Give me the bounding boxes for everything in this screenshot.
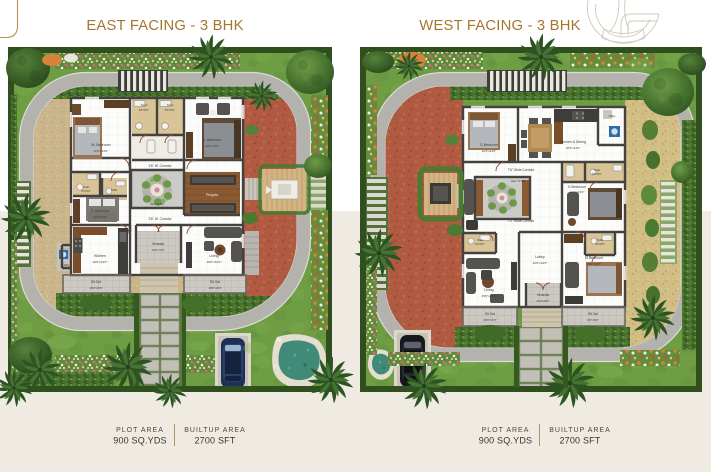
- svg-text:7'6" Wide Corridor: 7'6" Wide Corridor: [508, 168, 536, 172]
- svg-text:9'6"x6'0": 9'6"x6'0": [587, 318, 598, 322]
- svg-text:PLOT AREA: PLOT AREA: [482, 427, 530, 434]
- svg-text:900 SQ.YDS: 900 SQ.YDS: [479, 436, 533, 446]
- svg-text:900 SQ.YDS: 900 SQ.YDS: [113, 436, 167, 446]
- svg-text:8'0"x5'0": 8'0"x5'0": [592, 173, 602, 176]
- svg-text:EAST FACING - 3 BHK: EAST FACING - 3 BHK: [86, 18, 243, 34]
- svg-text:10'6"x13'0": 10'6"x13'0": [570, 190, 585, 194]
- svg-text:M.Bedroom: M.Bedroom: [585, 256, 603, 260]
- svg-text:12'0"x11'6": 12'0"x11'6": [482, 149, 497, 153]
- svg-text:15'0"x6'0": 15'0"x6'0": [483, 318, 496, 322]
- svg-text:15'0"x6'0": 15'0"x6'0": [89, 286, 102, 290]
- svg-text:Veranda: Veranda: [152, 242, 164, 246]
- svg-text:3'6" W. Corridor: 3'6" W. Corridor: [148, 217, 172, 221]
- svg-text:Toilet: Toilet: [594, 168, 601, 172]
- svg-text:Sit Out: Sit Out: [588, 312, 598, 316]
- svg-text:K.Bedroom: K.Bedroom: [568, 185, 586, 189]
- svg-text:11'0"x6'0": 11'0"x6'0": [537, 299, 550, 303]
- svg-text:8'0"x5'0": 8'0"x5'0": [139, 108, 149, 112]
- svg-text:Open To Sky: Open To Sky: [511, 180, 526, 183]
- svg-text:12'0"x11'0": 12'0"x11'0": [93, 215, 108, 219]
- svg-text:3'6" W. Corridor: 3'6" W. Corridor: [148, 164, 172, 168]
- svg-text:15'0"x6'0": 15'0"x6'0": [208, 286, 221, 290]
- svg-text:Living: Living: [209, 254, 218, 258]
- svg-text:Lobby: Lobby: [535, 255, 545, 259]
- svg-text:G.Bedroom: G.Bedroom: [480, 143, 498, 147]
- svg-text:WEST FACING - 3 BHK: WEST FACING - 3 BHK: [419, 18, 580, 34]
- svg-text:G. Bedroom: G. Bedroom: [91, 209, 110, 213]
- svg-text:Open To Sky: Open To Sky: [150, 203, 165, 206]
- svg-text:K. Bedroom: K. Bedroom: [203, 138, 222, 142]
- svg-text:Veranda: Veranda: [537, 293, 549, 297]
- svg-text:Utility: Utility: [63, 263, 70, 267]
- svg-text:2700 SFT: 2700 SFT: [194, 436, 235, 446]
- svg-text:Toilet: Toilet: [141, 103, 148, 107]
- svg-text:9'0"x5'6": 9'0"x5'6": [595, 243, 605, 246]
- svg-text:15'0"x14'0": 15'0"x14'0": [482, 294, 497, 298]
- svg-text:Toilet: Toilet: [477, 238, 484, 242]
- svg-text:2700 SFT: 2700 SFT: [559, 436, 600, 446]
- svg-text:22'0"x11'0": 22'0"x11'0": [566, 146, 581, 150]
- svg-text:PDR: PDR: [111, 188, 117, 192]
- svg-text:7'0" Wide Corridor: 7'0" Wide Corridor: [508, 219, 536, 223]
- svg-text:10'0"x13'0": 10'0"x13'0": [205, 144, 220, 148]
- svg-text:16'0"x14'0": 16'0"x14'0": [207, 260, 222, 264]
- svg-text:Toilet: Toilet: [83, 185, 90, 189]
- svg-text:M. Bedroom: M. Bedroom: [91, 143, 110, 147]
- svg-text:Utility: Utility: [609, 114, 616, 118]
- svg-text:14'0"x7'0": 14'0"x7'0": [151, 248, 164, 252]
- svg-text:PLOT AREA: PLOT AREA: [116, 427, 164, 434]
- svg-text:Toilet: Toilet: [597, 238, 604, 242]
- svg-text:12'0"x14'0": 12'0"x14'0": [533, 261, 548, 265]
- svg-text:Sit Out: Sit Out: [485, 312, 495, 316]
- svg-text:6'0"x5'0": 6'0"x5'0": [81, 190, 91, 193]
- svg-text:Pergola: Pergola: [206, 193, 218, 197]
- svg-text:10'0"x14'0": 10'0"x14'0": [93, 260, 108, 264]
- svg-text:Kitchen: Kitchen: [94, 254, 106, 258]
- svg-text:Toilet: Toilet: [167, 103, 174, 107]
- svg-text:8'0"x5'0": 8'0"x5'0": [165, 108, 175, 112]
- svg-text:BUILTUP AREA: BUILTUP AREA: [184, 427, 246, 434]
- svg-text:13'0"x14'0": 13'0"x14'0": [587, 262, 602, 266]
- svg-text:Sit Out: Sit Out: [91, 280, 101, 284]
- svg-text:BUILTUP AREA: BUILTUP AREA: [549, 427, 611, 434]
- svg-text:Kitchen & Dining: Kitchen & Dining: [560, 140, 586, 144]
- svg-text:Sit Out: Sit Out: [210, 280, 220, 284]
- svg-text:8'0"x5'0": 8'0"x5'0": [475, 243, 485, 246]
- svg-text:Living: Living: [484, 288, 493, 292]
- svg-text:11'0"x13'0": 11'0"x13'0": [94, 149, 109, 153]
